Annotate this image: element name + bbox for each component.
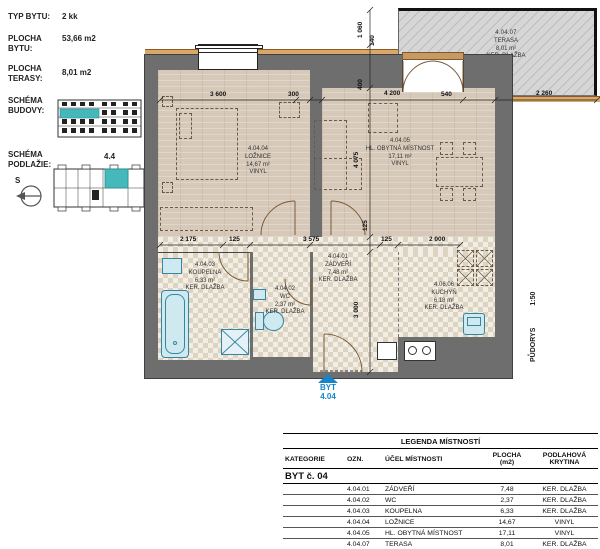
cell-ucel: TERASA <box>383 541 483 548</box>
building-schema <box>57 95 143 141</box>
dim-300: 300 <box>288 91 299 98</box>
chair-outline <box>463 142 476 155</box>
drawing-title: PŮDORYS1:50 <box>530 292 537 362</box>
wc-id: 4.04.02 <box>275 286 295 292</box>
dim-540: 540 <box>441 91 452 98</box>
legend-row: 4.04.02 WC 2,37 KER. DLAŽBA <box>283 495 598 506</box>
wc-area: 2,37 m² <box>275 302 295 308</box>
dim-3575: 3 575 <box>303 236 319 243</box>
chair-outline <box>440 188 453 201</box>
koupelna-name: KOUPELNA <box>189 270 222 276</box>
cell-krytina: VINYL <box>531 519 598 526</box>
col-plocha: PLOCHA (m2) <box>483 452 531 466</box>
kitchen-cabinet-outline <box>476 269 493 286</box>
dim-125-b: 125 <box>381 236 392 243</box>
col-krytina: PODLAHOVÁ KRYTINA <box>531 452 598 466</box>
dresser-outline <box>279 102 300 118</box>
room-label-living: 4.04.05 HL. OBYTNÁ MÍSTNOST 17,11 m² VIN… <box>355 138 445 169</box>
living-id: 4.04.05 <box>390 138 410 144</box>
terasa-area: 8,01 m² <box>496 46 516 52</box>
room-label-koupelna: 4.04.03 KOUPELNA 6,33 m² KER. DLAŽBA <box>170 262 240 293</box>
cell-plocha: 14,67 <box>483 519 531 526</box>
room-label-zadveri: 4.04.01 ZÁDVEŘÍ 7,48 m² KER. DLAŽBA <box>306 254 370 285</box>
cell-krytina: KER. DLAŽBA <box>531 508 598 515</box>
terasa-id: 4.04.07 <box>495 30 516 36</box>
coffee-table-outline <box>368 103 398 133</box>
dim-140: 140 <box>369 35 376 46</box>
plocha-bytu-label: PLOCHA BYTU: <box>8 34 42 54</box>
loznice-id: 4.04.04 <box>248 146 268 152</box>
cell-plocha: 2,37 <box>483 497 531 504</box>
typ-bytu-label: TYP BYTU: <box>8 12 50 22</box>
wc-name: WC <box>280 294 290 300</box>
window-frame <box>195 45 263 49</box>
kuchyn-area: 6,18 m² <box>434 298 454 304</box>
col-ozn: OZN. <box>345 456 383 463</box>
floor-schema <box>48 160 150 214</box>
zadveri-name: ZÁDVEŘÍ <box>325 262 351 268</box>
kuchyn-name: KUCHYŇ <box>431 290 456 296</box>
legend-row: 4.04.07 TERASA 8,01 KER. DLAŽBA <box>283 539 598 549</box>
schema-budovy-label: SCHÉMA BUDOVY: <box>8 96 44 116</box>
dim-125-c: 125 <box>362 220 369 231</box>
legend-row: 4.04.01 ZÁDVEŘÍ 7,48 KER. DLAŽBA <box>283 484 598 495</box>
legend-category: BYT č. 04 <box>283 469 598 484</box>
chair-outline <box>463 188 476 201</box>
dim-2260: 2 260 <box>536 90 552 97</box>
nightstand-outline <box>162 96 173 107</box>
dim-1060: 1 060 <box>357 22 364 38</box>
pillow-outline <box>179 113 192 139</box>
entrance-number: 4.04 <box>320 392 336 401</box>
cell-krytina: KER. DLAŽBA <box>531 486 598 493</box>
plocha-terasy-value: 8,01 m2 <box>62 68 91 77</box>
room-label-loznice: 4.04.04 LOŽNICE 14,67 m² VINYL <box>218 146 298 177</box>
col-kategorie: KATEGORIE <box>283 456 345 463</box>
stove-icon <box>404 341 436 361</box>
legend-row: 4.04.05 HL. OBYTNÁ MÍSTNOST 17,11 VINYL <box>283 528 598 539</box>
dim-400: 400 <box>357 79 364 90</box>
cell-ozn: 4.04.05 <box>345 530 383 537</box>
cell-plocha: 6,33 <box>483 508 531 515</box>
kitchen-cabinet-outline <box>457 250 474 267</box>
cell-ucel: HL. OBYTNÁ MÍSTNOST <box>383 530 483 537</box>
burner-icon <box>408 346 417 355</box>
cell-ozn: 4.04.04 <box>345 519 383 526</box>
cell-ozn: 4.04.03 <box>345 508 383 515</box>
wardrobe-outline <box>160 207 253 231</box>
cell-ucel: ZÁDVEŘÍ <box>383 486 483 493</box>
legend-row: 4.04.04 LOŽNICE 14,67 VINYL <box>283 517 598 528</box>
cell-plocha: 17,11 <box>483 530 531 537</box>
cell-krytina: VINYL <box>531 530 598 537</box>
compass-icon <box>12 182 46 214</box>
bathroom-wc-divider-wall <box>250 252 253 360</box>
shower <box>221 329 249 355</box>
cell-ozn: 4.04.01 <box>345 486 383 493</box>
living-floor: VINYL <box>391 161 408 167</box>
loznice-name: LOŽNICE <box>245 154 271 160</box>
living-name: HL. OBYTNÁ MÍSTNOST <box>366 146 434 152</box>
legend-table: LEGENDA MÍSTNOSTÍ KATEGORIE OZN. ÚČEL MÍ… <box>283 433 598 549</box>
cell-ozn: 4.04.07 <box>345 541 383 548</box>
burner-icon <box>422 346 431 355</box>
koupelna-floor: KER. DLAŽBA <box>185 285 224 291</box>
wc-floor: KER. DLAŽBA <box>265 309 304 315</box>
dim-3600: 3 600 <box>210 91 226 98</box>
room-label-wc: 4.04.02 WC 2,37 m² KER. DLAŽBA <box>262 286 308 317</box>
drain-icon <box>173 341 177 345</box>
shaft-niche <box>377 342 397 360</box>
sink-basin <box>467 317 481 326</box>
kuchyn-id: 4.06.06 <box>434 282 454 288</box>
bathtub-inner <box>165 294 185 354</box>
plocha-bytu-value: 53,66 m2 <box>62 34 96 43</box>
window-glazing-line <box>199 52 257 53</box>
room-label-kuchyn: 4.06.06 KUCHYŇ 6,18 m² KER. DLAŽBA <box>412 282 476 313</box>
bedroom-window <box>198 44 258 70</box>
loznice-floor: VINYL <box>249 169 266 175</box>
cell-plocha: 7,48 <box>483 486 531 493</box>
terrace-door-opening <box>402 60 464 92</box>
zadveri-id: 4.04.01 <box>328 254 348 260</box>
col-ucel: ÚČEL MÍSTNOSTI <box>383 456 483 463</box>
loznice-area: 14,67 m² <box>246 162 270 168</box>
dim-4200: 4 200 <box>384 90 400 97</box>
typ-bytu-value: 2 kk <box>62 12 78 21</box>
cell-krytina: KER. DLAŽBA <box>531 497 598 504</box>
hall-kitchen-boundary <box>398 252 399 337</box>
bathtub <box>161 290 189 358</box>
dim-2175: 2 175 <box>180 236 196 243</box>
cell-plocha: 8,01 <box>483 541 531 548</box>
legend-header-row: KATEGORIE OZN. ÚČEL MÍSTNOSTI PLOCHA (m2… <box>283 449 598 469</box>
floor-schema-drawing <box>48 160 150 214</box>
floorplan-sheet: TYP BYTU: 2 kk PLOCHA BYTU: 53,66 m2 PLO… <box>0 0 600 549</box>
cell-ucel: KOUPELNA <box>383 508 483 515</box>
terrace-door-frame <box>402 52 464 60</box>
cell-ozn: 4.04.02 <box>345 497 383 504</box>
zadveri-area: 7,48 m² <box>328 270 348 276</box>
drawing-title-text: PŮDORYS <box>530 328 537 362</box>
dim-2000: 2 000 <box>429 236 445 243</box>
building-schema-drawing <box>57 95 143 141</box>
dim-3000: 3 000 <box>353 302 360 318</box>
dim-4075: 4 075 <box>353 152 360 168</box>
drawing-scale: 1:50 <box>530 292 537 306</box>
cell-ucel: LOŽNICE <box>383 519 483 526</box>
dim-125-a: 125 <box>229 236 240 243</box>
nightstand-outline <box>162 182 173 193</box>
kitchen-sink <box>463 313 485 335</box>
living-area: 17,11 m² <box>388 154 411 160</box>
entrance-label: BYT 4.04 <box>310 383 346 401</box>
terasa-name: TERASA <box>494 38 518 44</box>
zadveri-floor: KER. DLAŽBA <box>318 277 357 283</box>
entrance-arrow-icon <box>318 374 338 383</box>
schema-podlazie-label: SCHÉMA PODLAŽIE: <box>8 150 51 170</box>
koupelna-area: 6,33 m² <box>195 278 215 284</box>
plocha-terasy-label: PLOCHA TERASY: <box>8 64 43 84</box>
kitchen-cabinet-outline <box>476 250 493 267</box>
cell-krytina: KER. DLAŽBA <box>531 541 598 548</box>
legend-row: 4.04.03 KOUPELNA 6,33 KER. DLAŽBA <box>283 506 598 517</box>
kuchyn-floor: KER. DLAŽBA <box>424 305 463 311</box>
entrance-byt: BYT <box>320 383 336 392</box>
legend-title: LEGENDA MÍSTNOSTÍ <box>283 433 598 449</box>
cell-ucel: WC <box>383 497 483 504</box>
koupelna-id: 4.04.03 <box>195 262 215 268</box>
